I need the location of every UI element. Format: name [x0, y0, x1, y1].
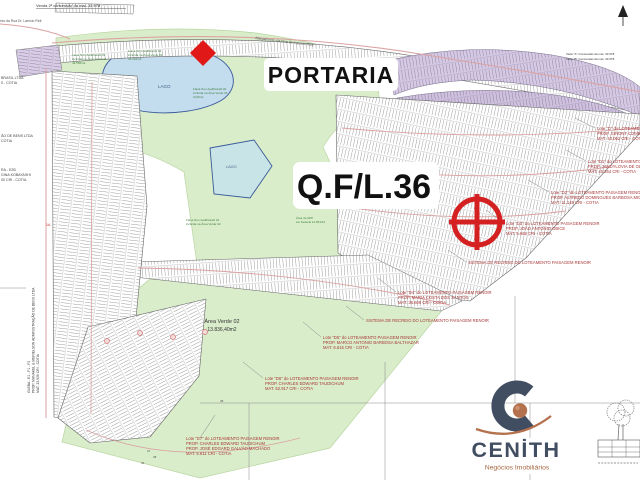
- green-note-line: Lei Federal 12.651/12: [296, 220, 326, 224]
- qfl-label: Q.F/L.36: [297, 168, 431, 206]
- site-plan-svg: Venda 2ª concessão da mat. 33.978 Alarga…: [0, 0, 640, 480]
- cenith-wordmark: CENİTH: [471, 438, 560, 462]
- green-note-line: 43.556m2: [72, 61, 86, 65]
- area-verde-label: Área Verde 02: [204, 318, 239, 325]
- left-annotation-line: BRASIL LTDA: [1, 76, 24, 80]
- cenith-dot: [513, 403, 527, 417]
- plat-map-image: Venda 2ª concessão da mat. 33.978 Alarga…: [0, 0, 640, 480]
- plot-number: 38: [220, 399, 224, 403]
- marker-1a-label: 1A: [46, 223, 51, 227]
- portaria-label-group: PORTARIA: [264, 58, 398, 91]
- top-note: Venda 2ª concessão da mat. 33.978: [36, 3, 101, 8]
- portaria-label: PORTARIA: [268, 62, 394, 88]
- plot-number: 36: [141, 461, 145, 465]
- green-note-line: incluída na Área Verde 02: [186, 222, 221, 226]
- viela-note-1: Viela "A" Concessão da mat. 33.978: [566, 52, 615, 56]
- lot-annotation-line: MAT. 5.968 CRI - COTIA: [506, 231, 552, 236]
- cenith-tagline: Negócios Imobiliários: [485, 465, 550, 472]
- lot-annotation-line: MAT. 11.149 CRI - COTIA: [551, 200, 599, 205]
- vertical-annotation-line: PROP. MANAKEL & MERIELSON ADMINISTRAÇÃO …: [31, 287, 36, 393]
- left-annotation-line: ÃO DE BENS LTDA: [1, 133, 33, 138]
- plot-number: 37: [147, 449, 151, 453]
- left-annotation-line: COTIA: [1, 139, 13, 143]
- lot-annotation-line: MAT. 6.615 CRI - COTIA: [323, 345, 369, 350]
- lower-lake-label: LAGO: [226, 165, 237, 169]
- area-verde-size: 13.836,40m2: [207, 327, 236, 333]
- lot-annotation-line: MAT. 36.609 CRI - COTIA: [398, 300, 446, 305]
- vertical-annotation-line: MAT. 33.936 CRI - COTIA: [36, 353, 40, 393]
- lot-annotation-line: MAT. 52.917 CRI - COTIA: [265, 386, 313, 391]
- left-annotation-line: 00 CRI - COTIA: [1, 178, 27, 182]
- lot-annotation-line: MAT. 5.611 CRI - COTIA: [186, 451, 232, 456]
- lot-annotation-line: MAT. 40.062 CRI - COTIA: [597, 136, 640, 141]
- upper-lake-label: LAGO: [158, 84, 171, 89]
- left-annotation-line: 0 - COTIA: [1, 81, 18, 85]
- viela-note-2: Viela "B" Concessão da mat. 33.978: [566, 57, 615, 61]
- left-annotation-line: RA - E2B: [1, 168, 16, 172]
- sistema-recreio-note: SISTEMA DE RECREIO DO LOTEAMENTO PAISAGE…: [468, 260, 591, 265]
- vertical-annotation-line: GLEBA - E1 - F1 - F2: [27, 361, 31, 393]
- road-label-left: Alargamento da Rua Dr. Laercio Reti: [0, 19, 42, 23]
- lot-annotation-line: MAT. 40.264 CRI - COTIA: [588, 169, 636, 174]
- plot-number: 38: [153, 455, 157, 459]
- qfl-label-group: Q.F/L.36: [293, 162, 439, 209]
- sistema-recreio-note: SISTEMA DE RECREIO DO LOTEAMENTO PAISAGE…: [366, 318, 489, 323]
- green-note-line: (3,00m): [193, 95, 203, 99]
- green-note-line: 45.004m2: [128, 57, 142, 61]
- left-annotation-line: GINA KOBAYASHI: [1, 173, 31, 177]
